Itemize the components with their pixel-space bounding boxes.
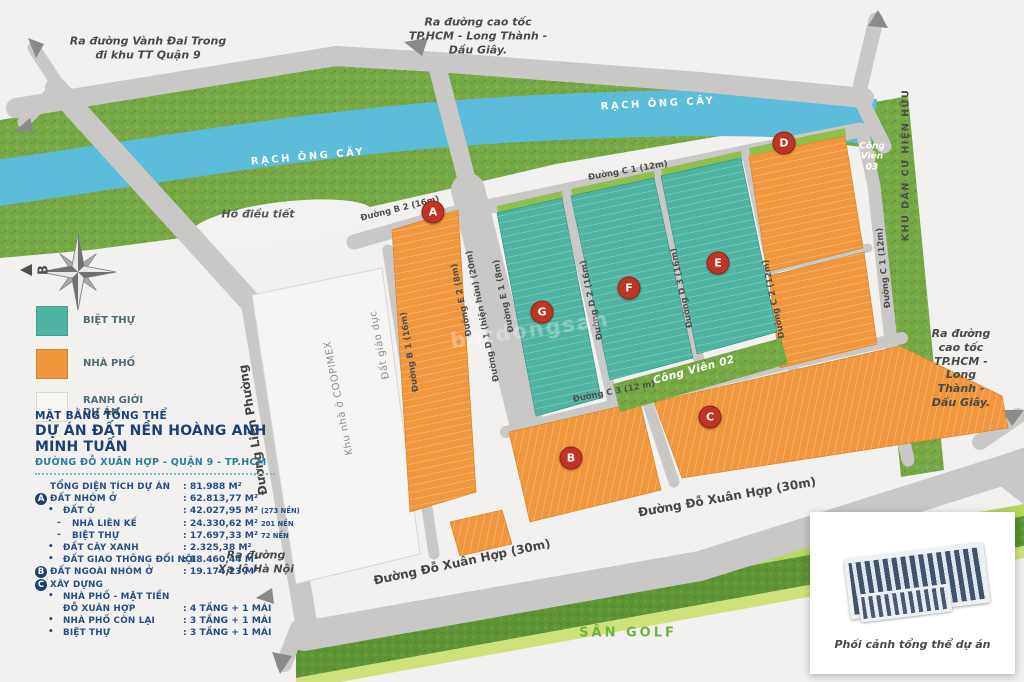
row-label: TỔNG DIỆN TÍCH DỰ ÁN [50,481,170,493]
info-row-7: BĐẤT NGOÀI NHÓM Ở: 19.174,23 M² [35,566,300,578]
marker-c: C [699,406,722,429]
row-badge: A [35,493,50,505]
info-row-12: •BIỆT THỰ: 3 TẦNG + 1 MÁI [35,627,300,639]
row-bullet: • [48,627,63,637]
inset-card: Phối cảnh tổng thể dự án [810,512,1015,674]
row-bullet: • [48,615,63,625]
row-bullet: - [57,530,72,540]
row-value: : 81.988 M² [183,481,242,493]
row-label: ĐẤT Ở [63,505,95,517]
row-bullet: • [48,505,63,515]
info-row-9: •NHÀ PHỐ - MẶT TIỀN [35,591,300,603]
info-row-2: •ĐẤT Ở: 42.027,95 M²(273 NỀN) [35,505,300,517]
row-value: : 2.325,38 M² [183,542,252,554]
row-value: : 24.330,62 M²201 NỀN [183,518,294,530]
panel-address: ĐƯỜNG ĐỖ XUÂN HỢP - QUẬN 9 - TP.HCM [35,457,300,468]
row-value: : 3 TẦNG + 1 MÁI [183,627,271,639]
row-label: ĐỖ XUÂN HỢP [63,603,136,615]
info-panel: MẶT BẰNG TỔNG THỂ DỰ ÁN ĐẤT NỀN HOÀNG AN… [35,410,300,640]
row-label: BIỆT THỰ [63,627,110,639]
row-bullet: • [48,542,63,552]
row-bullet: - [57,518,72,528]
info-row-6: •ĐẤT GIAO THÔNG ĐỐI NỘI: 18.460,44 M² [35,554,300,566]
row-label: ĐẤT NHÓM Ở [50,493,117,505]
row-bullet: • [48,554,63,564]
row-value: : 4 TẦNG + 1 MÁI [183,603,271,615]
marker-e: E [707,252,730,275]
inset-photo [825,525,1000,628]
site-plan-map: Ra đường Vành Đai Trong đi khu TT Quận 9… [0,0,1024,682]
row-value: : 62.813,77 M² [183,493,258,505]
inset-caption: Phối cảnh tổng thể dự án [810,638,1015,651]
legend-item-1: NHÀ PHỐ [36,349,143,379]
panel-heading-large: DỰ ÁN ĐẤT NỀN HOÀNG ANH MINH TUẤN [35,423,300,455]
row-badge: B [35,566,50,578]
row-label: NHÀ PHỐ - MẶT TIỀN [63,591,170,603]
row-note: 72 NỀN [261,532,289,540]
row-label: ĐẤT CÂY XANH [63,542,139,554]
row-value: : 42.027,95 M²(273 NỀN) [183,505,300,517]
row-label: BIỆT THỰ [72,530,119,542]
info-row-11: •NHÀ PHỐ CÒN LẠI: 3 TẦNG + 1 MÁI [35,615,300,627]
legend-swatch [36,349,68,379]
row-note: 201 NỀN [261,520,294,528]
panel-heading-small: MẶT BẰNG TỔNG THỂ [35,410,300,422]
marker-f: F [618,277,641,300]
info-row-3: -NHÀ LIÊN KẾ: 24.330,62 M²201 NỀN [35,518,300,530]
row-note: (273 NỀN) [261,507,300,515]
info-row-4: -BIỆT THỰ: 17.697,33 M²72 NỀN [35,530,300,542]
info-row-5: •ĐẤT CÂY XANH: 2.325,38 M² [35,542,300,554]
row-label: ĐẤT GIAO THÔNG ĐỐI NỘI [63,554,196,566]
row-label: XÂY DỰNG [50,579,103,591]
row-value: : 18.460,44 M² [183,554,258,566]
legend-item-0: BIỆT THỰ [36,306,143,336]
row-label: ĐẤT NGOÀI NHÓM Ở [50,566,153,578]
marker-a: A [422,201,445,224]
info-row-1: AĐẤT NHÓM Ở: 62.813,77 M² [35,493,300,505]
info-row-8: CXÂY DỰNG [35,579,300,591]
marker-b: B [560,447,583,470]
row-value: : 17.697,33 M²72 NỀN [183,530,289,542]
row-label: NHÀ LIÊN KẾ [72,518,137,530]
row-value: : 3 TẦNG + 1 MÁI [183,615,271,627]
legend-swatch [36,306,68,336]
info-row-0: TỔNG DIỆN TÍCH DỰ ÁN: 81.988 M² [35,481,300,493]
legend-label: BIỆT THỰ [83,315,135,328]
dotted-divider [35,473,275,475]
info-row-10: ĐỖ XUÂN HỢP: 4 TẦNG + 1 MÁI [35,603,300,615]
row-label: NHÀ PHỐ CÒN LẠI [63,615,155,627]
row-bullet: • [48,591,63,601]
row-value: : 19.174,23 M² [183,566,258,578]
marker-d: D [773,132,796,155]
info-rows: TỔNG DIỆN TÍCH DỰ ÁN: 81.988 M²AĐẤT NHÓM… [35,481,300,640]
legend-label: NHÀ PHỐ [83,358,135,371]
row-badge: C [35,579,50,591]
